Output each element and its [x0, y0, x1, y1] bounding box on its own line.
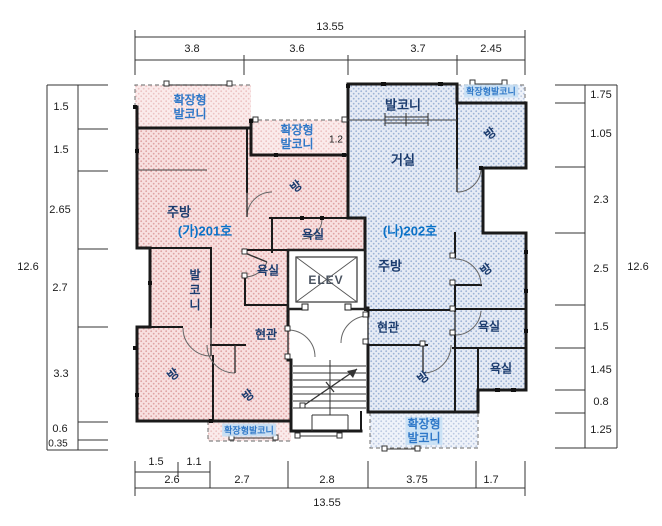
floor-plan-drawing	[0, 0, 662, 526]
unit2-main-area	[348, 84, 526, 412]
unit2-balcony-bottom-area	[370, 412, 478, 448]
floor-plan-page: 13.55 3.8 3.6 3.7 2.45 1.5 1.1 2.6 2.7 2…	[0, 0, 662, 526]
unit1-balcony-top-left-area	[135, 85, 251, 128]
staircase	[293, 360, 366, 431]
elevator-shaft	[288, 250, 365, 313]
unit1-balcony-mid-area	[251, 120, 348, 155]
unit2-balcony-top-right-area	[457, 85, 525, 103]
